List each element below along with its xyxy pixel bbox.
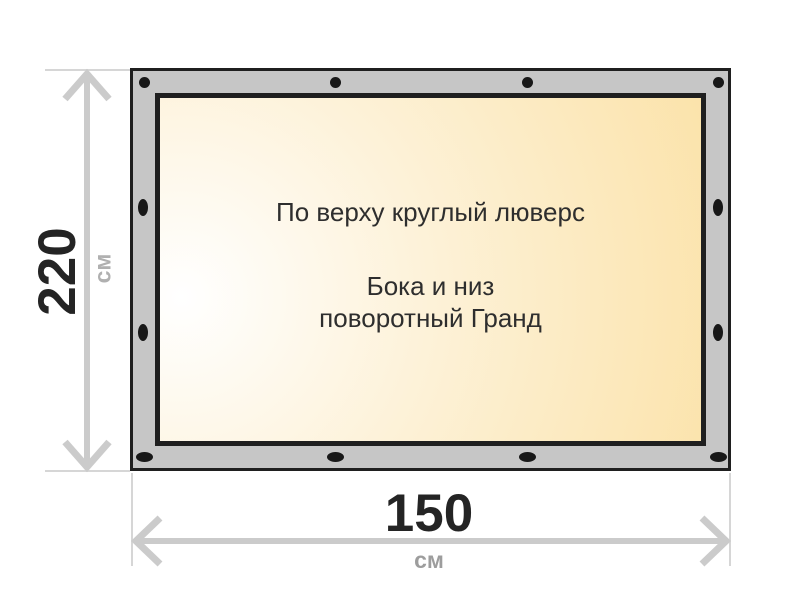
grommet-right-2 [713,324,723,341]
grommet-right-1 [713,199,723,216]
width-value-label: 150 [329,487,529,540]
grommet-top-4 [713,77,724,88]
sides-note-line2: поворотный Гранд [160,302,701,334]
height-arrowhead-up-icon [65,74,109,99]
grommet-bottom-2 [327,452,344,462]
grommet-top-1 [139,77,150,88]
grommet-top-3 [522,77,533,88]
height-arrowhead-down-icon [65,442,109,467]
height-value-label: 220 [31,189,84,354]
top-note: По верху круглый люверс [160,196,701,228]
grommet-bottom-1 [136,452,153,462]
diagram-canvas: По верху круглый люверс Бока и низ повор… [0,0,800,600]
banner-frame: По верху круглый люверс Бока и низ повор… [130,68,731,471]
grommet-top-2 [330,77,341,88]
sides-note: Бока и низ поворотный Гранд [160,270,701,334]
width-unit-label: см [379,549,479,572]
width-arrowhead-left-icon [136,518,160,564]
width-arrowhead-right-icon [702,518,726,564]
grommet-bottom-4 [710,452,727,462]
height-unit-label: см [92,236,115,302]
grommet-left-1 [138,199,148,216]
sides-note-line1: Бока и низ [160,270,701,302]
banner-canvas: По верху круглый люверс Бока и низ повор… [155,93,706,446]
grommet-left-2 [138,324,148,341]
grommet-bottom-3 [519,452,536,462]
